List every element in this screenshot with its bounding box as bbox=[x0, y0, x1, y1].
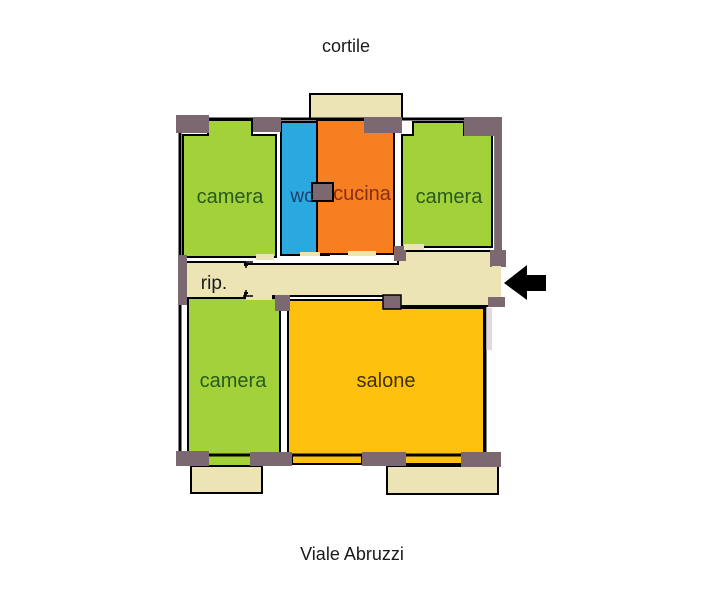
wall-pillar bbox=[312, 183, 333, 201]
room-label-cucina: cucina bbox=[333, 183, 392, 205]
wall-pillar bbox=[488, 297, 505, 307]
label-cortile: cortile bbox=[322, 36, 370, 56]
door-opening-camera-top-left bbox=[256, 254, 274, 260]
wall-pillar bbox=[253, 117, 281, 132]
door-opening-wc bbox=[300, 252, 320, 256]
room-label-salone: salone bbox=[357, 370, 416, 392]
room-label-camera-top-right: camera bbox=[416, 186, 484, 208]
balcony-bottom-left bbox=[191, 466, 262, 493]
scan-artifact bbox=[486, 308, 492, 350]
room-label-rip: rip. bbox=[201, 273, 227, 294]
balcony-top bbox=[310, 94, 402, 119]
wall-pillar bbox=[275, 295, 290, 311]
wall-pillar bbox=[250, 452, 292, 466]
door-opening-camera-bottom-left bbox=[246, 294, 272, 300]
floorplan-drawing: camera wc cucina camera rip. camera salo… bbox=[0, 0, 722, 603]
door-opening-camera-top-right bbox=[404, 244, 424, 250]
wall-pillar bbox=[176, 115, 209, 133]
wall-pillar bbox=[178, 255, 187, 305]
wall-pillar bbox=[464, 117, 502, 136]
room-label-wc: wc bbox=[289, 186, 313, 207]
label-viale-abruzzi: Viale Abruzzi bbox=[300, 544, 404, 564]
balcony-bottom-right bbox=[387, 466, 498, 494]
wall-pillar bbox=[362, 452, 406, 466]
wall-pillar bbox=[461, 452, 501, 467]
wall-pillar bbox=[490, 250, 506, 267]
wall-pillar bbox=[383, 295, 401, 309]
room-label-camera-top-left: camera bbox=[197, 186, 265, 208]
entrance-arrow-icon bbox=[504, 265, 546, 300]
wall-pillar bbox=[176, 451, 209, 466]
floorplan-page: camera wc cucina camera rip. camera salo… bbox=[0, 0, 722, 603]
wall-pillar bbox=[495, 134, 502, 252]
room-label-camera-bottom-left: camera bbox=[200, 370, 268, 392]
door-opening-cucina bbox=[348, 251, 376, 256]
door-opening-entrance bbox=[492, 266, 501, 297]
door-opening-rip bbox=[243, 266, 249, 292]
wall-pillar bbox=[364, 117, 402, 133]
room-camera-top-right bbox=[402, 122, 492, 247]
